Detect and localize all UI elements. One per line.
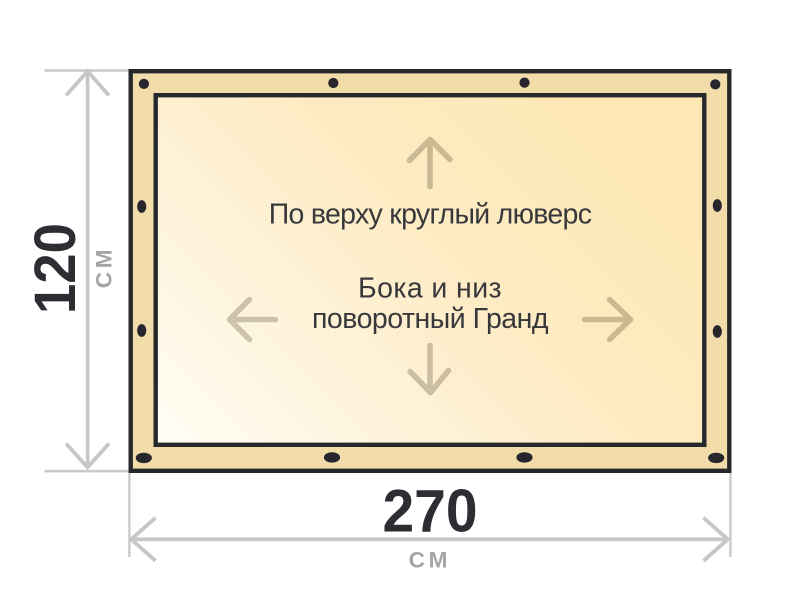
svg-text:120: 120 — [23, 223, 88, 314]
svg-text:270: 270 — [382, 478, 477, 545]
svg-text:СМ: СМ — [92, 245, 117, 288]
svg-text:По верху круглый люверс: По верху круглый люверс — [269, 199, 592, 231]
svg-text:поворотный Гранд: поворотный Гранд — [312, 303, 549, 335]
svg-text:Бока и низ: Бока и низ — [358, 273, 502, 305]
svg-text:СМ: СМ — [409, 548, 452, 573]
